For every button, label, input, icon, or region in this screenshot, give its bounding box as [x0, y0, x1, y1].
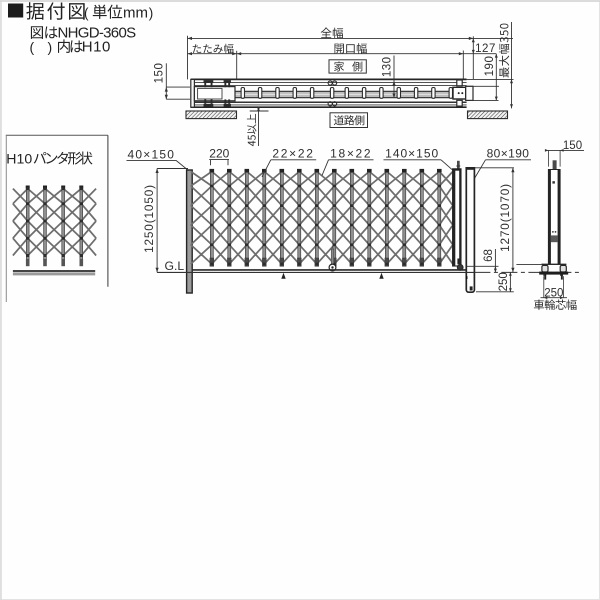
svg-text:40×150: 40×150 [128, 148, 176, 162]
svg-text:22×22: 22×22 [272, 146, 314, 160]
svg-text:250: 250 [544, 288, 563, 300]
svg-text:220: 220 [209, 146, 229, 160]
svg-text:130: 130 [382, 56, 394, 77]
svg-text:150: 150 [154, 63, 166, 84]
svg-text:190: 190 [484, 56, 496, 77]
svg-text:18×22: 18×22 [330, 146, 372, 160]
svg-text:H10: H10 [82, 39, 111, 56]
svg-text:(: ( [30, 39, 35, 55]
svg-text:G.L: G.L [165, 259, 185, 273]
svg-text:140×150: 140×150 [385, 146, 439, 160]
svg-text:(: ( [84, 5, 89, 20]
svg-text:1270(1070): 1270(1070) [498, 183, 512, 252]
svg-text:250: 250 [498, 272, 510, 291]
svg-text:): ) [149, 5, 154, 20]
svg-text:150: 150 [563, 140, 582, 152]
svg-text:68: 68 [483, 249, 495, 262]
svg-text:127: 127 [475, 43, 496, 55]
svg-text:H10: H10 [6, 150, 32, 166]
svg-text:mm: mm [123, 5, 148, 22]
svg-text:): ) [48, 39, 53, 55]
svg-text:80×190: 80×190 [487, 146, 530, 160]
svg-text:1250(1050): 1250(1050) [142, 184, 156, 253]
